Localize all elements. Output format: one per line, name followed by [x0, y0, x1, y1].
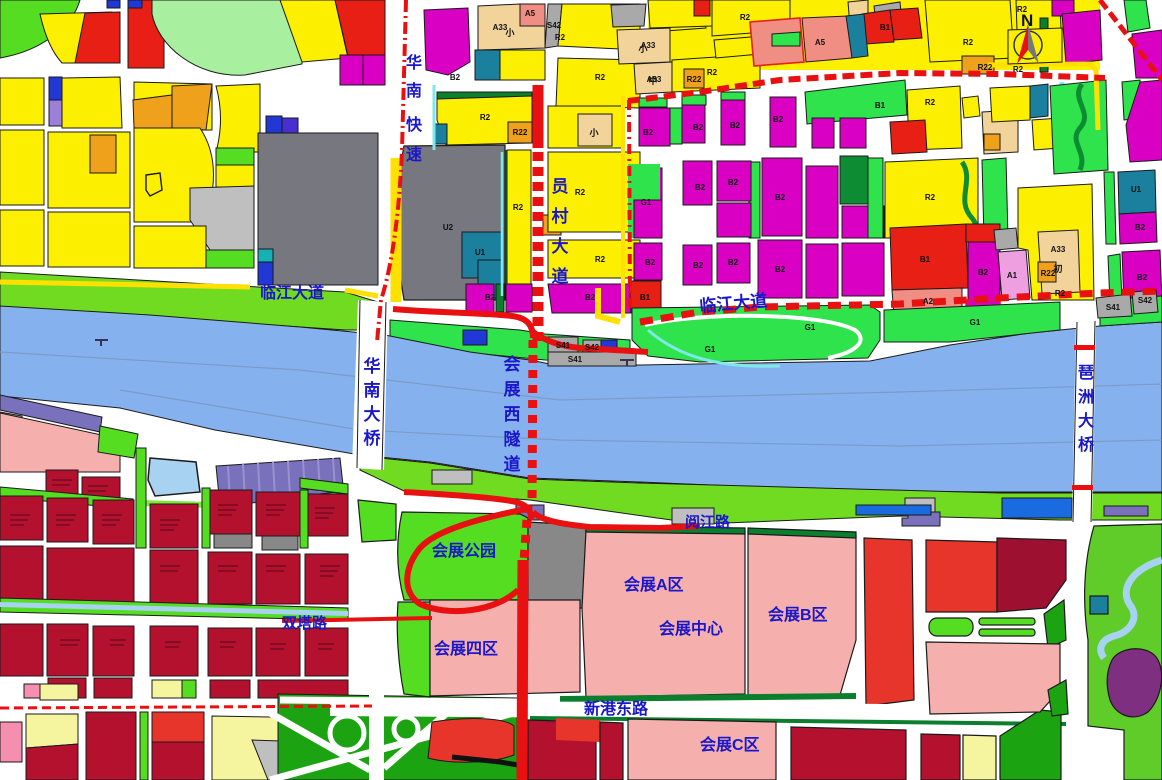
svg-text:R2: R2	[740, 13, 751, 22]
svg-text:B2: B2	[643, 128, 654, 137]
svg-text:B2: B2	[693, 261, 704, 270]
svg-text:A1: A1	[1007, 271, 1018, 280]
svg-text:B2: B2	[978, 268, 989, 277]
svg-text:S41: S41	[1106, 303, 1121, 312]
svg-text:会展C区: 会展C区	[700, 735, 760, 754]
svg-text:S41: S41	[556, 341, 571, 350]
svg-text:B1: B1	[640, 293, 651, 302]
svg-text:洲: 洲	[1078, 388, 1094, 406]
svg-text:R2: R2	[963, 38, 974, 47]
svg-text:初: 初	[1053, 263, 1062, 274]
svg-text:A5: A5	[815, 38, 826, 47]
svg-text:R22: R22	[513, 128, 528, 137]
svg-text:B2: B2	[728, 258, 739, 267]
svg-text:U1: U1	[475, 248, 486, 257]
svg-text:R2: R2	[555, 33, 566, 42]
svg-text:G1: G1	[970, 318, 981, 327]
svg-text:桥: 桥	[364, 429, 382, 448]
svg-text:小: 小	[588, 127, 598, 138]
svg-text:R2: R2	[575, 188, 586, 197]
svg-text:华: 华	[364, 356, 381, 376]
svg-text:S42: S42	[1138, 296, 1153, 305]
svg-text:B2: B2	[1137, 273, 1148, 282]
svg-text:R2: R2	[925, 193, 936, 202]
svg-text:大: 大	[1078, 411, 1094, 430]
svg-text:B2: B2	[775, 265, 786, 274]
svg-text:G1: G1	[705, 345, 716, 354]
svg-text:琶: 琶	[1078, 364, 1094, 382]
svg-text:B2: B2	[1135, 223, 1146, 232]
svg-text:中: 中	[648, 75, 657, 86]
svg-text:新港东路: 新港东路	[584, 699, 649, 718]
svg-text:大: 大	[364, 404, 381, 424]
svg-text:R2: R2	[925, 98, 936, 107]
svg-text:B2: B2	[450, 73, 461, 82]
svg-text:R2: R2	[513, 203, 524, 212]
svg-text:会展中心: 会展中心	[659, 619, 723, 638]
svg-text:员: 员	[552, 177, 569, 196]
svg-text:B2: B2	[645, 258, 656, 267]
svg-text:会展A区: 会展A区	[624, 575, 684, 594]
svg-text:西: 西	[504, 405, 521, 424]
svg-text:华: 华	[406, 53, 422, 72]
svg-text:B1: B1	[880, 23, 891, 32]
svg-text:快: 快	[406, 115, 423, 134]
svg-text:R2: R2	[595, 73, 606, 82]
svg-text:R2: R2	[1055, 289, 1066, 298]
svg-text:R2: R2	[707, 68, 718, 77]
svg-text:R2: R2	[480, 113, 491, 122]
svg-text:速: 速	[406, 146, 422, 164]
svg-text:U1: U1	[1131, 185, 1142, 194]
svg-text:大: 大	[552, 236, 569, 256]
svg-text:南: 南	[364, 380, 381, 400]
svg-text:会展四区: 会展四区	[434, 639, 498, 658]
svg-text:村: 村	[552, 206, 569, 226]
svg-text:B2: B2	[775, 193, 786, 202]
svg-text:会: 会	[504, 354, 521, 374]
svg-text:临江大道: 临江大道	[260, 283, 324, 302]
svg-text:小: 小	[637, 43, 647, 54]
svg-text:R22: R22	[978, 63, 993, 72]
svg-text:小: 小	[504, 27, 514, 38]
svg-text:B2: B2	[730, 121, 741, 130]
svg-text:B2: B2	[585, 293, 596, 302]
svg-text:桥: 桥	[1078, 435, 1095, 454]
svg-text:R2: R2	[1013, 65, 1024, 74]
svg-text:B1: B1	[875, 101, 886, 110]
svg-text:B1: B1	[920, 255, 931, 264]
svg-text:道: 道	[552, 266, 569, 286]
svg-text:会展公园: 会展公园	[432, 541, 496, 560]
svg-text:R22: R22	[687, 75, 702, 84]
svg-text:B2: B2	[485, 293, 496, 302]
svg-text:S42: S42	[547, 21, 562, 30]
svg-text:A2: A2	[923, 297, 934, 306]
svg-text:B2: B2	[693, 123, 704, 132]
svg-text:双塔路: 双塔路	[282, 614, 328, 632]
svg-text:S42: S42	[585, 343, 600, 352]
svg-text:阅江路: 阅江路	[685, 513, 731, 531]
svg-text:B2: B2	[728, 178, 739, 187]
svg-text:R2: R2	[595, 255, 606, 264]
svg-text:A33: A33	[1051, 245, 1066, 254]
svg-text:展: 展	[504, 380, 521, 399]
svg-text:U2: U2	[443, 223, 454, 232]
svg-text:B2: B2	[695, 183, 706, 192]
svg-text:N: N	[1021, 11, 1033, 30]
svg-text:南: 南	[406, 81, 422, 100]
svg-text:A5: A5	[525, 9, 536, 18]
svg-text:G1: G1	[641, 198, 652, 207]
svg-text:会展B区: 会展B区	[768, 605, 828, 624]
svg-text:道: 道	[504, 454, 521, 474]
svg-text:B2: B2	[773, 115, 784, 124]
svg-text:S41: S41	[568, 355, 583, 364]
svg-text:G1: G1	[805, 323, 816, 332]
svg-text:隧: 隧	[504, 429, 521, 449]
